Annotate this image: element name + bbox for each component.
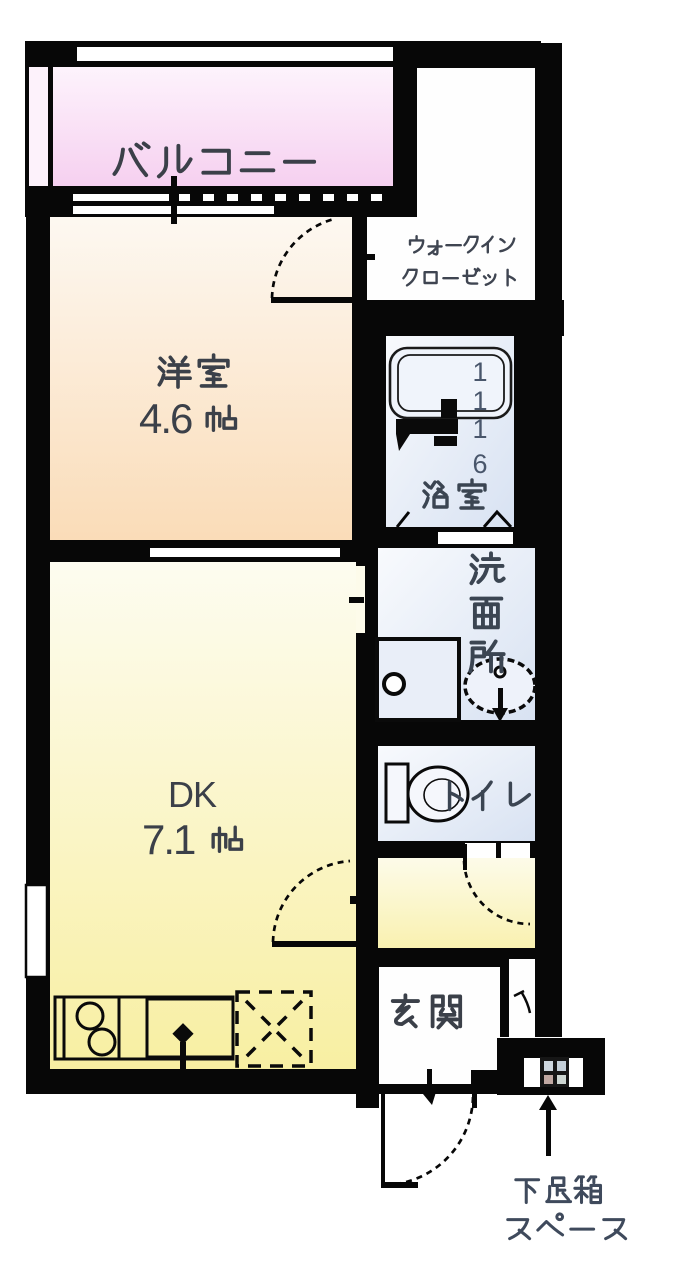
svg-text:4.6: 4.6 — [139, 395, 192, 442]
svg-text:6: 6 — [472, 449, 487, 479]
svg-text:DK: DK — [168, 774, 217, 815]
svg-text:1: 1 — [472, 414, 487, 444]
svg-text:1: 1 — [472, 357, 487, 387]
svg-text:7.1: 7.1 — [142, 816, 195, 863]
svg-text:1: 1 — [472, 386, 487, 416]
